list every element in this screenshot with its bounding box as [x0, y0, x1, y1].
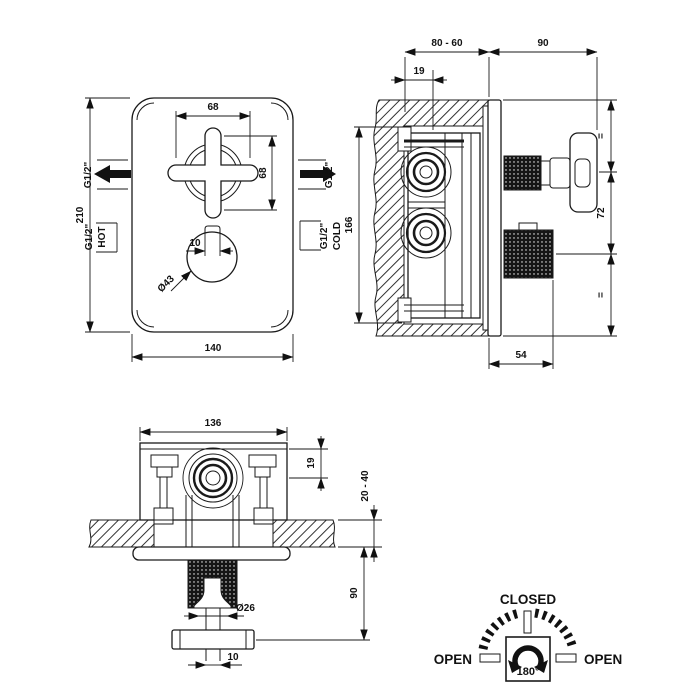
dim-plate-height: 210 — [75, 98, 130, 332]
front-view: 68 68 210 140 10 — [75, 98, 343, 362]
dim-text-handle-height: 68 — [258, 167, 269, 179]
closed-label: CLOSED — [500, 592, 557, 607]
dim-text-knob-depth: 54 — [515, 350, 527, 361]
knurled-knob — [504, 230, 553, 278]
open-left-tick — [480, 654, 500, 662]
hot-label: HOT — [97, 226, 108, 247]
dim-handle-distance: 90 — [256, 547, 370, 640]
dim-stem-width: 10 — [188, 652, 242, 665]
knurled-stem — [504, 156, 541, 190]
open-left-label: OPEN — [434, 652, 472, 667]
dim-text-handle-spacing: 72 — [596, 207, 607, 219]
cross-handle-bottom — [172, 630, 254, 661]
dim-wall-thickness: 20 - 40 — [338, 470, 382, 562]
dim-text-handle-width: 68 — [207, 102, 219, 113]
outlet-right-thread: G1/2" — [324, 162, 335, 189]
technical-drawing-page: 68 68 210 140 10 — [0, 0, 700, 700]
hot-port-label: G1/2" HOT — [84, 223, 117, 252]
outlet-left-label: G1/2" — [83, 160, 131, 189]
dim-text-body-width: 136 — [205, 418, 222, 429]
dim-text-plate-height: 210 — [75, 206, 86, 223]
dim-text-knob-tab: 10 — [189, 238, 201, 249]
flow-arrow-left-icon — [94, 165, 131, 183]
dim-text-stem-diameter: Ø26 — [236, 603, 255, 614]
open-right-label: OPEN — [584, 652, 622, 667]
dim-text-equal-top: = — [596, 133, 607, 139]
dim-text-protrusion: 90 — [537, 38, 549, 49]
dim-text-stem-width: 10 — [227, 652, 239, 663]
cold-port-label: G1/2" COLD — [300, 221, 343, 250]
valve-body-side — [398, 127, 480, 322]
rotation-diagram: CLOSED OPEN OPEN 180° — [434, 592, 623, 681]
trim-plate-side — [483, 100, 501, 336]
cold-label: COLD — [332, 222, 343, 250]
cross-handle-side — [504, 133, 597, 212]
bottom-view: 136 19 20 - 40 90 — [89, 418, 382, 665]
dim-text-bracket-offset: 19 — [413, 66, 425, 77]
dim-body-width: 136 — [140, 418, 287, 441]
dim-text-recess-depth: 80 - 60 — [431, 38, 463, 49]
dim-text-port-offset: 19 — [306, 457, 317, 469]
dim-text-wall-thickness: 20 - 40 — [360, 470, 371, 502]
dim-plate-width: 140 — [132, 334, 293, 362]
dim-handle-spacing: = 72 = — [503, 100, 617, 336]
outlet-left-thread: G1/2" — [83, 162, 94, 189]
rotation-angle-label: 180° — [517, 666, 540, 678]
dim-port-offset: 19 — [289, 436, 328, 491]
dim-text-plate-width: 140 — [205, 343, 222, 354]
wall-section-bottom — [89, 520, 335, 547]
dim-text-equal-bottom: = — [596, 292, 607, 298]
escutcheon-edge — [133, 547, 290, 560]
thermostat-knob-side — [504, 223, 553, 278]
open-right-tick — [556, 654, 576, 662]
closed-position-tick — [524, 611, 531, 633]
thermostat-stem-bottom — [188, 560, 237, 630]
dim-text-body-height: 166 — [344, 216, 355, 233]
dim-text-handle-distance: 90 — [349, 587, 360, 599]
hot-thread: G1/2" — [84, 224, 95, 251]
side-view: 80 - 60 90 19 166 = 72 — [344, 38, 617, 369]
valve-body-bottom — [140, 443, 287, 548]
outlet-right-label: G1/2" — [298, 160, 336, 189]
drawing-canvas: 68 68 210 140 10 — [0, 0, 700, 700]
cold-thread: G1/2" — [319, 223, 330, 250]
